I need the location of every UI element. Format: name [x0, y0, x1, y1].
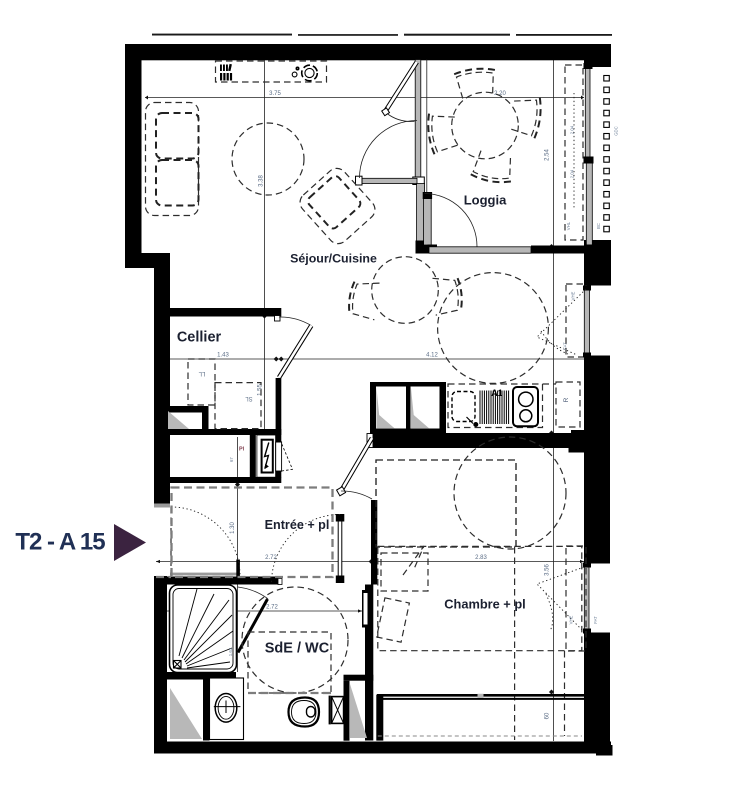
svg-text:A1: A1 [491, 388, 503, 398]
svg-text:67: 67 [229, 457, 234, 462]
svg-text:1.43: 1.43 [217, 353, 229, 359]
svg-text:FAT: FAT [593, 616, 598, 624]
svg-text:Séjour/Cuisine: Séjour/Cuisine [290, 252, 377, 266]
svg-text:3.38: 3.38 [259, 175, 265, 187]
svg-text:SL: SL [245, 395, 253, 401]
svg-text:VHE: VHE [571, 291, 576, 300]
svg-text:1.30: 1.30 [230, 522, 236, 534]
svg-text:Pl: Pl [239, 447, 245, 453]
svg-text:3.56: 3.56 [545, 564, 551, 576]
svg-text:Cellier: Cellier [177, 330, 222, 346]
svg-text:Entrée + pl: Entrée + pl [265, 518, 330, 532]
svg-text:LL: LL [198, 370, 205, 376]
svg-text:60: 60 [545, 712, 551, 719]
svg-text:2.54: 2.54 [545, 149, 551, 161]
svg-text:2.83: 2.83 [475, 555, 487, 561]
svg-text:SdE / WC: SdE / WC [265, 641, 330, 657]
svg-text:Chambre + pl: Chambre + pl [444, 597, 525, 612]
svg-text:2.04: 2.04 [570, 169, 575, 178]
svg-text:2.72: 2.72 [266, 605, 278, 611]
svg-text:1.63: 1.63 [228, 647, 233, 656]
svg-text:GDC: GDC [614, 126, 619, 136]
svg-text:4.12: 4.12 [426, 353, 438, 359]
svg-text:R: R [563, 397, 570, 402]
svg-text:T2 - A 15: T2 - A 15 [15, 529, 105, 556]
svg-text:VHE: VHE [569, 615, 574, 624]
svg-text:BC: BC [596, 223, 601, 229]
svg-text:Loggia: Loggia [464, 193, 507, 208]
svg-text:3.75: 3.75 [269, 91, 281, 97]
svg-text:2.04: 2.04 [570, 125, 575, 134]
svg-text:2.72: 2.72 [265, 555, 277, 561]
svg-text:VHL: VHL [566, 221, 571, 230]
svg-text:FAT: FAT [563, 342, 568, 350]
